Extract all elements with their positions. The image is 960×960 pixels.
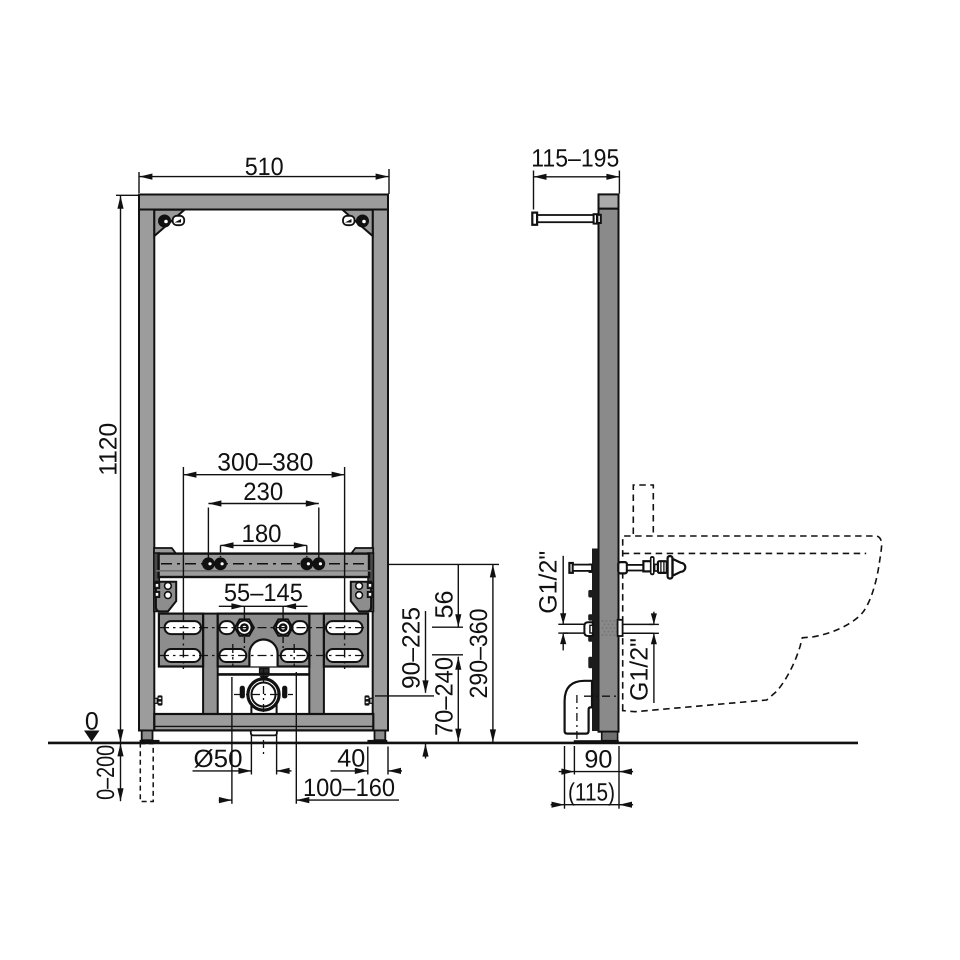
svg-text:300–380: 300–380 (217, 449, 313, 477)
svg-text:90–225: 90–225 (398, 607, 426, 689)
svg-text:115–195: 115–195 (531, 145, 619, 173)
svg-text:G1/2": G1/2" (535, 551, 563, 614)
svg-text:70–240: 70–240 (431, 657, 459, 736)
svg-text:90: 90 (584, 746, 612, 774)
svg-text:510: 510 (245, 153, 284, 181)
svg-text:56: 56 (431, 591, 459, 619)
svg-text:0–200: 0–200 (92, 745, 120, 800)
svg-text:G1/2": G1/2" (626, 638, 654, 701)
svg-text:(115): (115) (568, 778, 615, 806)
svg-text:55–145: 55–145 (224, 579, 303, 607)
svg-text:100–160: 100–160 (303, 774, 395, 802)
svg-text:1120: 1120 (95, 423, 123, 476)
svg-text:230: 230 (243, 478, 283, 506)
svg-text:40: 40 (337, 744, 365, 772)
svg-text:180: 180 (242, 520, 282, 548)
svg-text:290–360: 290–360 (465, 609, 493, 699)
svg-text:Ø50: Ø50 (194, 745, 243, 773)
